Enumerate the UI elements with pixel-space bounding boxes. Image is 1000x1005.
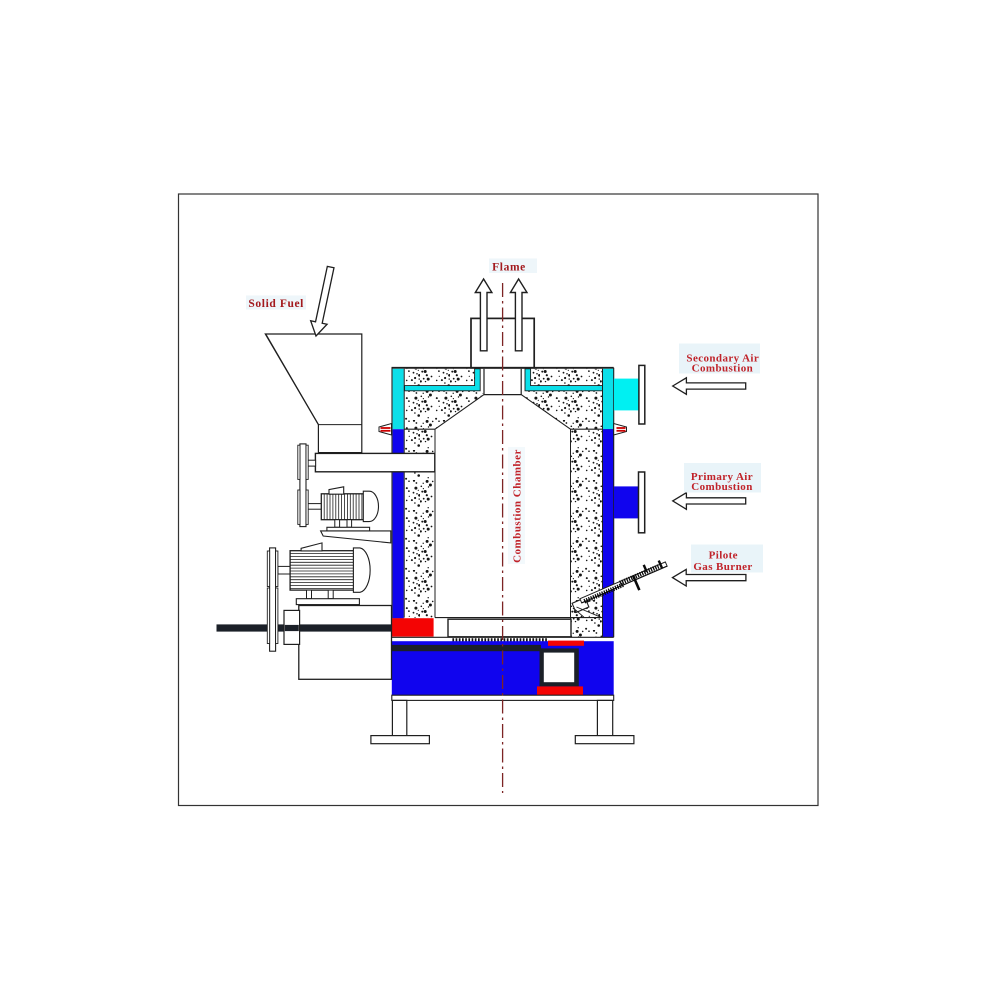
svg-text:Solid Fuel: Solid Fuel	[248, 298, 304, 310]
svg-text:Combustion: Combustion	[691, 481, 752, 493]
svg-text:Combustion Chamber: Combustion Chamber	[512, 449, 524, 563]
svg-text:Combustion: Combustion	[692, 363, 753, 375]
svg-text:Flame: Flame	[492, 261, 526, 273]
svg-text:Pilote: Pilote	[709, 550, 738, 562]
svg-text:Gas Burner: Gas Burner	[693, 561, 752, 573]
